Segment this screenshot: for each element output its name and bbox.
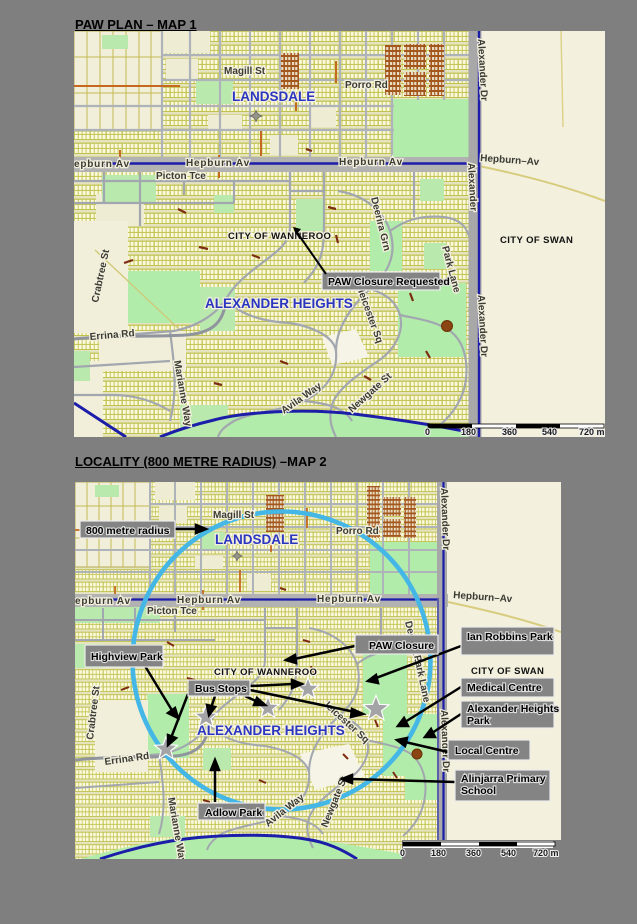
svg-text:Ian Robbins Park: Ian Robbins Park <box>467 631 553 643</box>
svg-text:LANDSDALE: LANDSDALE <box>232 89 315 104</box>
svg-text:Hepburn Av: Hepburn Av <box>317 594 381 605</box>
svg-text:Porro Rd: Porro Rd <box>336 526 379 537</box>
svg-text:Porro Rd: Porro Rd <box>345 80 388 91</box>
svg-text:Hepburn Av: Hepburn Av <box>186 158 250 169</box>
svg-text:epburn Av: epburn Av <box>75 596 131 607</box>
svg-text:PAW Closure: PAW Closure <box>369 640 434 652</box>
svg-text:Bus Stops: Bus Stops <box>195 683 247 695</box>
svg-text:CITY OF WANNEROO: CITY OF WANNEROO <box>214 667 317 678</box>
svg-text:ALEXANDER HEIGHTS: ALEXANDER HEIGHTS <box>197 723 345 738</box>
svg-text:CITY OF SWAN: CITY OF SWAN <box>500 235 573 246</box>
svg-text:CITY OF SWAN: CITY OF SWAN <box>471 666 544 677</box>
svg-text:720 m: 720 m <box>533 848 559 858</box>
svg-text:Highview Park: Highview Park <box>91 651 163 663</box>
svg-text:360: 360 <box>502 427 517 437</box>
svg-text:360: 360 <box>466 848 481 858</box>
svg-text:Alexander Dr: Alexander Dr <box>438 488 451 551</box>
svg-text:800 metre radius: 800 metre radius <box>86 525 170 537</box>
svg-text:LANDSDALE: LANDSDALE <box>215 532 298 547</box>
svg-text:Medical Centre: Medical Centre <box>467 682 542 694</box>
svg-text:Hepburn Av: Hepburn Av <box>339 157 403 168</box>
svg-text:Adlow Park: Adlow Park <box>205 807 262 819</box>
svg-text:Park: Park <box>467 715 490 727</box>
svg-text:180: 180 <box>431 848 446 858</box>
svg-text:School: School <box>461 785 496 797</box>
svg-text:720 m: 720 m <box>579 427 605 437</box>
svg-text:180: 180 <box>461 427 476 437</box>
svg-text:540: 540 <box>501 848 516 858</box>
svg-text:Picton Tce: Picton Tce <box>147 606 197 617</box>
svg-text:0: 0 <box>400 848 405 858</box>
svg-text:Alexander Heights: Alexander Heights <box>467 703 559 715</box>
svg-text:540: 540 <box>542 427 557 437</box>
svg-text:Hepburn Av: Hepburn Av <box>177 595 241 606</box>
svg-text:Alinjarra Primary: Alinjarra Primary <box>461 773 546 785</box>
svg-text:PAW Closure Requested: PAW Closure Requested <box>328 276 450 288</box>
svg-text:epburn Av: epburn Av <box>74 159 130 170</box>
svg-text:Picton Tce: Picton Tce <box>156 171 206 182</box>
svg-text:Magill St: Magill St <box>224 66 266 77</box>
svg-text:Magill St: Magill St <box>213 510 255 521</box>
svg-text:CITY OF WANNEROO: CITY OF WANNEROO <box>228 231 331 242</box>
svg-text:Local Centre: Local Centre <box>455 745 519 757</box>
svg-text:0: 0 <box>425 427 430 437</box>
svg-text:ALEXANDER HEIGHTS: ALEXANDER HEIGHTS <box>205 296 353 311</box>
